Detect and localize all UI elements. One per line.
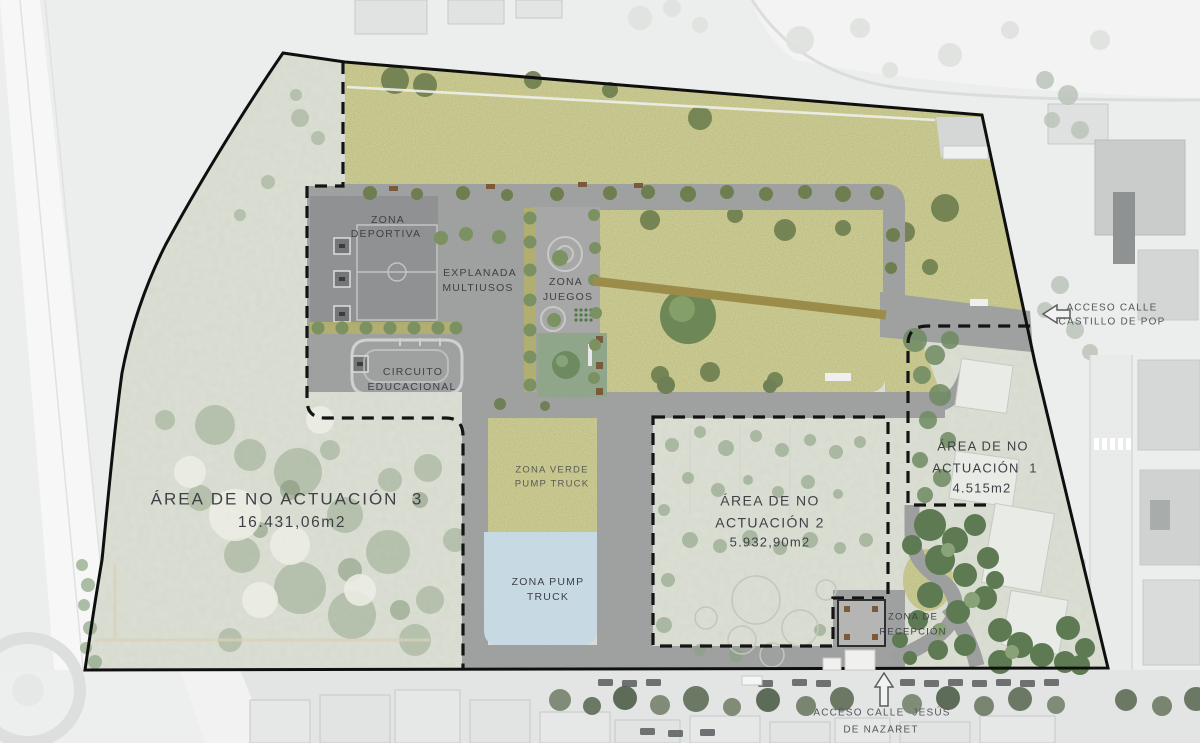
label-acceso-nazaret-2: DE NAZARET <box>843 725 918 736</box>
label-circuito-2: EDUCACIONAL <box>367 381 456 393</box>
path-marker <box>825 373 851 381</box>
label-circuito-1: CIRCUITO <box>383 366 443 378</box>
playground-tree <box>552 250 568 266</box>
label-area2-2: ACTUACIÓN 2 <box>715 515 825 531</box>
label-area1-surface: 4.515m2 <box>953 480 1012 495</box>
label-zona-deportiva-2: DEPORTIVA <box>351 228 422 240</box>
label-area1-1: ÁREA DE NO <box>937 438 1028 453</box>
site-plan-page: ZONA DEPORTIVA EXPLANADA MULTIUSOS ZONA … <box>0 0 1200 743</box>
label-zona-juegos-1: ZONA <box>549 276 583 288</box>
label-zona-pump-1: ZONA PUMP <box>512 576 585 588</box>
label-area2-surface: 5.932,90m2 <box>730 534 811 549</box>
path-marker <box>970 299 988 306</box>
corner-building <box>943 146 988 159</box>
white-van <box>742 676 762 685</box>
green-square-tree-highlight <box>556 355 568 367</box>
label-recepcion-2: RECEPCIÓN <box>879 627 946 638</box>
label-explanada-1: EXPLANADA <box>443 267 517 279</box>
label-zona-deportiva-1: ZONA <box>371 214 405 226</box>
label-recepcion-1: ZONA DE <box>888 612 938 623</box>
label-area2-1: ÁREA DE NO <box>720 493 820 509</box>
label-zona-verde-pump-2: PUMP TRUCK <box>515 479 589 490</box>
label-zona-pump-2: TRUCK <box>527 591 569 603</box>
site-plan-canvas: ZONA DEPORTIVA EXPLANADA MULTIUSOS ZONA … <box>0 0 1200 743</box>
label-acceso-castillo-2: CASTILLO DE POP <box>1059 317 1166 328</box>
label-zona-verde-pump-1: ZONA VERDE <box>515 465 588 476</box>
label-area3-surface: 16.431,06m2 <box>238 514 346 531</box>
label-zona-juegos-2: JUEGOS <box>543 291 593 303</box>
label-area1-2: ACTUACIÓN 1 <box>932 460 1037 475</box>
label-acceso-nazaret-1: ACCESO CALLE JESÚS <box>813 706 950 719</box>
playground-tree <box>547 313 561 327</box>
label-acceso-castillo-1: ACCESO CALLE <box>1066 303 1157 314</box>
zona-pump-truck-area <box>484 532 597 645</box>
label-area3-name: ÁREA DE NO ACTUACIÓN 3 <box>151 489 424 508</box>
label-explanada-2: MULTIUSOS <box>442 282 513 294</box>
